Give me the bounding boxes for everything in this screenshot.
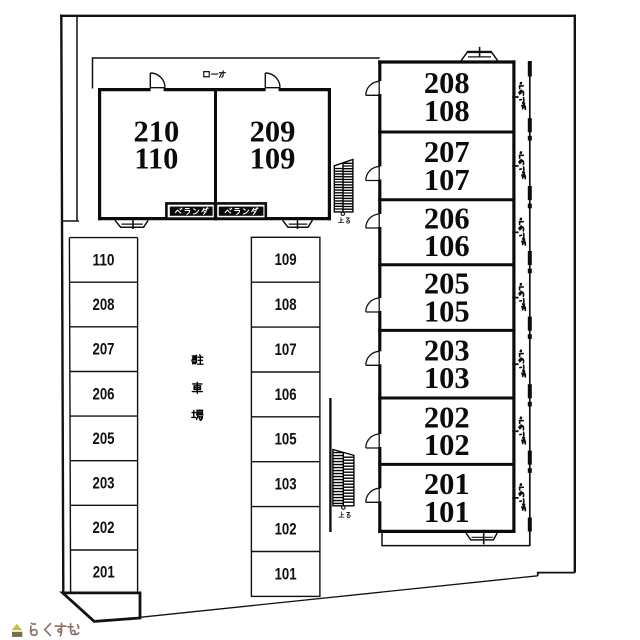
svg-text:102: 102 xyxy=(424,428,470,462)
svg-text:205: 205 xyxy=(93,430,115,448)
svg-text:108: 108 xyxy=(424,94,470,128)
svg-text:109: 109 xyxy=(250,142,296,176)
svg-text:208: 208 xyxy=(93,296,115,314)
svg-text:207: 207 xyxy=(93,341,115,359)
svg-text:103: 103 xyxy=(424,361,470,395)
svg-text:105: 105 xyxy=(424,295,470,329)
svg-text:203: 203 xyxy=(93,475,115,493)
svg-text:202: 202 xyxy=(93,519,115,537)
svg-text:108: 108 xyxy=(275,296,297,314)
svg-text:105: 105 xyxy=(275,431,297,449)
svg-text:110: 110 xyxy=(134,142,178,176)
svg-text:106: 106 xyxy=(275,386,297,404)
svg-text:107: 107 xyxy=(424,163,470,197)
svg-text:103: 103 xyxy=(275,476,297,494)
svg-text:107: 107 xyxy=(275,341,297,359)
svg-text:206: 206 xyxy=(93,385,115,403)
svg-text:109: 109 xyxy=(275,251,297,269)
svg-text:201: 201 xyxy=(93,564,115,582)
svg-text:102: 102 xyxy=(275,521,297,539)
svg-text:106: 106 xyxy=(424,229,470,263)
svg-text:110: 110 xyxy=(93,251,115,269)
svg-text:101: 101 xyxy=(424,495,470,529)
svg-text:101: 101 xyxy=(275,565,297,583)
